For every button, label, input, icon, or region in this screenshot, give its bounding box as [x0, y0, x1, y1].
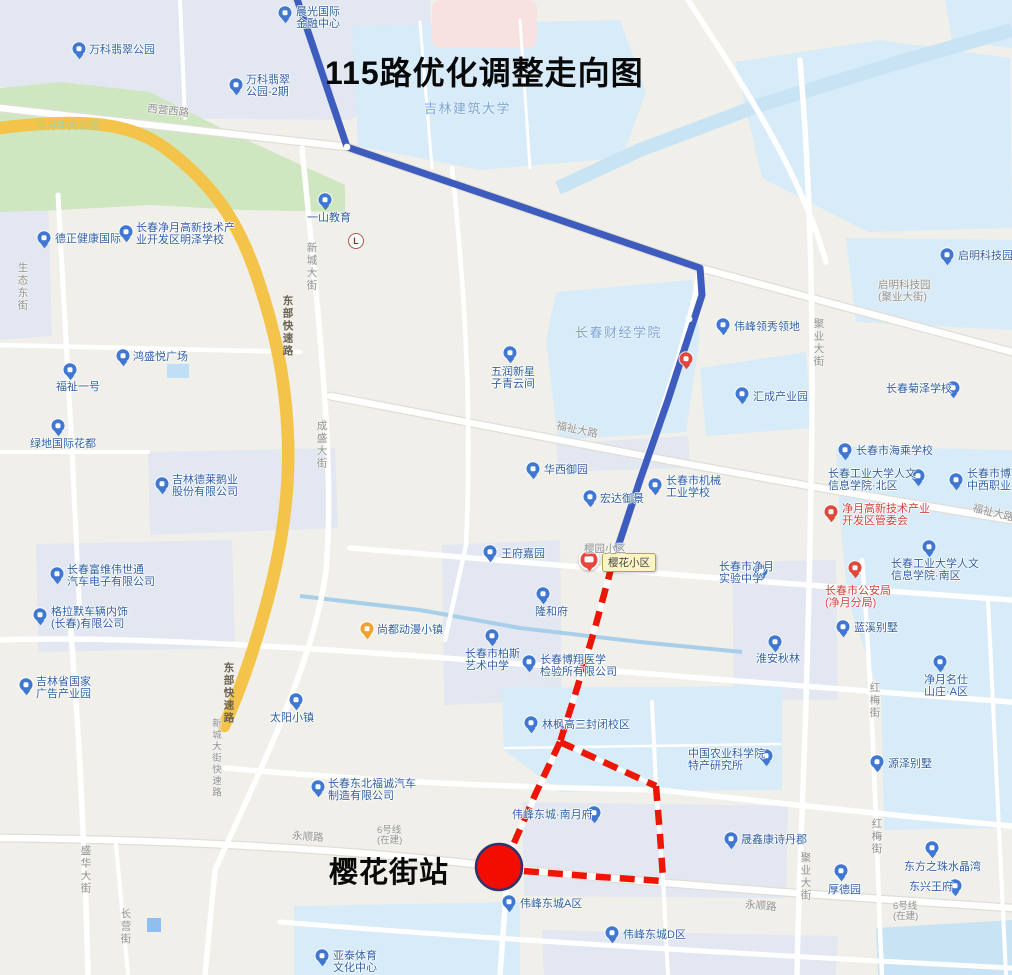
baisi-art-school-text: 艺术中学	[465, 660, 520, 672]
longhefu-icon[interactable]	[537, 587, 550, 600]
yingyuan-community-text: 樱园小区	[584, 544, 626, 556]
metro-line6-station-text: (在建)	[377, 836, 402, 846]
fucheng-auto-icon[interactable]	[312, 780, 325, 793]
public-security-jingyue-label: 长春市公安局(净月分局)	[825, 585, 891, 609]
shengxin-kangshidanjun-text: 晟鑫康诗丹郡	[741, 834, 807, 846]
lanxi-villa-icon[interactable]	[837, 620, 850, 633]
chengsheng-street-label: 成盛大街	[315, 420, 327, 470]
gaosan-campus-label: 林枫高三封闭校区	[542, 719, 630, 731]
huaian-qiulin-icon[interactable]	[769, 635, 782, 648]
weifeng-dongcheng-d-text: 伟峰东城D区	[623, 929, 686, 941]
map-screenshot: 115路优化调整走向图 樱花街站 L 樱花小区 晨光国际金融中心万科翡翠公园万科…	[0, 0, 1012, 975]
boyi-vocational-school-icon[interactable]	[950, 473, 963, 486]
jilin-jianzhu-university-text: 吉林建筑大学	[424, 101, 511, 116]
grammer-interior-text: (长春)有限公司	[51, 618, 128, 630]
shangdu-anime-town-icon[interactable]	[361, 622, 374, 635]
red-poi-marker-icon[interactable]	[680, 352, 693, 365]
gongda-renwen-north-text: 长春工业大学人文	[828, 468, 916, 480]
gaosan-campus-icon[interactable]	[525, 716, 538, 729]
hongsheng-plaza-label: 鸿盛悦广场	[133, 351, 188, 363]
xincheng-expressway-name-label: 新城大街快速路	[210, 718, 220, 799]
jingyue-mingshi-villa-a-icon[interactable]	[934, 655, 947, 668]
yishan-education-icon[interactable]	[319, 193, 332, 206]
yongshun-road-west-label: 永顺路	[292, 831, 324, 845]
fuzhi-road-east-label: 福祉大路	[971, 503, 1012, 524]
jilin-jianzhu-university-label: 吉林建筑大学	[424, 98, 511, 117]
label-overlay: 115路优化调整走向图 樱花街站 L 樱花小区 晨光国际金融中心万科翡翠公园万科…	[0, 0, 1012, 975]
metro-line6-station-label: 6号线(在建)	[377, 826, 402, 846]
wurun-xinxing-text: 子青云间	[491, 378, 535, 390]
weifeng-lingxiu-icon[interactable]	[717, 318, 730, 331]
hongda-yujing-icon[interactable]	[584, 490, 597, 503]
mingze-school-text: 业开发区明泽学校	[136, 234, 235, 246]
hongmei-street-n-label: 红梅街	[868, 682, 880, 720]
dongxing-wangfu-label: 东兴王府	[909, 881, 953, 893]
fuzhi-no1-label: 福祉一号	[56, 381, 100, 393]
jixie-industry-school-text: 工业学校	[666, 487, 721, 499]
xincheng-street-text: 新城大街	[305, 242, 317, 292]
yatai-sports-center-icon[interactable]	[316, 949, 329, 962]
qiming-tech-park-label: 启明科技园	[958, 250, 1012, 262]
boyi-vocational-school-label: 长春市博艺中西职业学	[967, 468, 1012, 492]
weifeng-dongcheng-d-icon[interactable]	[606, 926, 619, 939]
hongda-yujing-text: 宏达御景	[600, 493, 644, 505]
yatai-sports-center-label: 亚泰体育文化中心	[333, 950, 377, 974]
yongshun-road-east-label: 永顺路	[745, 900, 777, 914]
agri-academy-institute-label: 中国农业科学院特产研究所	[688, 748, 765, 772]
jilin-elai-goose-text: 股份有限公司	[172, 486, 238, 498]
juye-street-north-label: 聚业大街	[812, 318, 824, 368]
changying-street-label: 长营街	[119, 908, 131, 946]
jingyue-hightech-committee-label: 净月高新技术产业开发区管委会	[842, 503, 930, 527]
qiming-tech-park-icon[interactable]	[941, 248, 954, 261]
chenguang-intl-finance-center-text: 晨光国际	[296, 6, 340, 18]
metro-line6-east-label: 6号线(在建)	[893, 902, 918, 922]
agri-academy-institute-text: 中国农业科学院	[688, 748, 765, 760]
vanke-jade-park-label: 万科翡翠公园	[89, 44, 155, 56]
agri-academy-institute-text: 特产研究所	[688, 760, 765, 772]
vanke-jade-park-icon[interactable]	[73, 42, 86, 55]
lvdi-intl-huadu-text: 绿地国际花都	[30, 438, 96, 450]
jingyue-shiyan-middle-school-text: 长春市净月	[719, 561, 774, 573]
huicheng-industry-park-icon[interactable]	[736, 387, 749, 400]
jilin-ad-industry-park-text: 吉林省国家	[36, 676, 91, 688]
east-expressway-s-text: 东部快速路	[222, 662, 234, 725]
mingze-school-icon[interactable]	[120, 225, 133, 238]
longhefu-text: 隆和府	[535, 606, 568, 618]
gongda-renwen-south-label: 长春工业大学人文信息学院·南区	[891, 558, 979, 582]
yongshun-road-east-text: 永顺路	[745, 900, 777, 914]
jingyue-shiyan-middle-school-text: 实验中学	[719, 573, 774, 585]
dongxing-wangfu-text: 东兴王府	[909, 881, 953, 893]
jingyue-mingshi-villa-a-label: 净月名仕山庄·A区	[924, 674, 968, 698]
dongfangzhizhu-crystal-bay-icon[interactable]	[926, 841, 939, 854]
shengxin-kangshidanjun-label: 晟鑫康诗丹郡	[741, 834, 807, 846]
weifeng-dongcheng-a-icon[interactable]	[503, 895, 516, 908]
east-expressway-s-label: 东部快速路	[222, 662, 234, 725]
juye-street-north-text: 聚业大街	[812, 318, 824, 368]
jingyue-hightech-committee-icon[interactable]	[825, 505, 838, 518]
fuzhi-road-east-text: 福祉大路	[971, 503, 1012, 524]
yongshun-road-west-text: 永顺路	[292, 831, 324, 845]
weifeng-nanyuefu-label: 伟峰东城·南月府	[512, 809, 593, 821]
jilin-elai-goose-icon[interactable]	[156, 477, 169, 490]
jingyue-hightech-committee-text: 开发区管委会	[842, 515, 930, 527]
haicheng-school-text: 长春市海乘学校	[856, 445, 933, 457]
fuwei-visteon-text: 长春富维伟世通	[67, 564, 155, 576]
fuzhi-road-mid-text: 福祉大路	[555, 421, 598, 441]
dezheng-health-intl-text: 德正健康国际	[55, 233, 121, 245]
boyi-vocational-school-text: 长春市博艺	[967, 468, 1012, 480]
vanke-jade-park-text: 万科翡翠公园	[89, 44, 155, 56]
vanke-jade-park-2-text: 万科翡翠	[246, 74, 290, 86]
metro-line6-east-text: (在建)	[893, 912, 918, 922]
boxiang-medical-lab-label: 长春博翔医学检验所有限公司	[540, 654, 617, 678]
changchun-finance-college-label: 长春财经学院	[575, 322, 662, 341]
weifeng-dongcheng-a-label: 伟峰东城A区	[520, 898, 582, 910]
mingze-school-text: 长春净月高新技术产	[136, 222, 235, 234]
chengsheng-street-text: 成盛大街	[315, 420, 327, 470]
dongfangzhizhu-crystal-bay-label: 东方之珠水晶湾	[904, 861, 981, 873]
jilin-elai-goose-label: 吉林德莱鹅业股份有限公司	[172, 474, 238, 498]
hongmei-street-n-text: 红梅街	[868, 682, 880, 720]
huicheng-industry-park-label: 汇成产业园	[753, 391, 808, 403]
public-security-jingyue-text: 长春市公安局	[825, 585, 891, 597]
juze-school-text: 长春菊泽学校	[886, 383, 952, 395]
qiming-tech-park-juye-label: 启明科技园(聚业大街)	[878, 280, 931, 303]
gongda-renwen-south-text: 长春工业大学人文	[891, 558, 979, 570]
shenghua-street-label: 盛华大街	[79, 845, 91, 895]
lvdi-intl-huadu-label: 绿地国际花都	[30, 438, 96, 450]
public-security-jingyue-icon[interactable]	[849, 561, 862, 574]
juye-street-south-label: 聚业大街	[799, 852, 811, 902]
map-title: 115路优化调整走向图	[325, 48, 644, 94]
fucheng-auto-text: 长春东北福诚汽车	[328, 778, 416, 790]
qiming-tech-park-text: 启明科技园	[958, 250, 1012, 262]
changying-street-text: 长营街	[119, 908, 131, 946]
jilin-elai-goose-text: 吉林德莱鹅业	[172, 474, 238, 486]
shangdu-anime-town-text: 尚都动漫小镇	[377, 624, 443, 636]
jingyue-mingshi-villa-a-text: 山庄·A区	[924, 686, 968, 698]
yuanze-villa-label: 源泽别墅	[888, 758, 932, 770]
boyi-vocational-school-text: 中西职业学	[967, 480, 1012, 492]
fuzhi-road-mid-label: 福祉大路	[555, 421, 598, 441]
huaxi-yuyuan-icon[interactable]	[527, 462, 540, 475]
longhefu-label: 隆和府	[535, 606, 568, 618]
chenguang-intl-finance-center-icon[interactable]	[279, 6, 292, 19]
houdeyuan-text: 厚德园	[828, 884, 861, 896]
chenguang-intl-finance-center-label: 晨光国际金融中心	[296, 6, 340, 30]
boxiang-medical-lab-text: 检验所有限公司	[540, 666, 617, 678]
gongda-renwen-south-text: 信息学院·南区	[891, 570, 979, 582]
jilin-ad-industry-park-icon[interactable]	[20, 678, 33, 691]
huaxi-yuyuan-label: 华西御园	[544, 464, 588, 476]
vanke-jade-park-2-icon[interactable]	[230, 78, 243, 91]
gongda-renwen-north-text: 信息学院·北区	[828, 480, 916, 492]
yingyuan-community-label: 樱园小区	[584, 544, 626, 556]
jingyue-hightech-committee-text: 净月高新技术产业	[842, 503, 930, 515]
grammer-interior-text: 格拉默车辆内饰	[51, 606, 128, 618]
wurun-xinxing-icon[interactable]	[504, 346, 517, 359]
jilin-ad-industry-park-label: 吉林省国家广告产业园	[36, 676, 91, 700]
houdeyuan-label: 厚德园	[828, 884, 861, 896]
fuzhi-no1-text: 福祉一号	[56, 381, 100, 393]
landmark-icon: L	[348, 233, 364, 249]
jixie-industry-school-text: 长春市机械	[666, 475, 721, 487]
boxiang-medical-lab-icon[interactable]	[523, 655, 536, 668]
station-label: 樱花街站	[329, 849, 449, 891]
weifeng-dongcheng-d-label: 伟峰东城D区	[623, 929, 686, 941]
weifeng-nanyuefu-text: 伟峰东城·南月府	[512, 809, 593, 821]
fuwei-visteon-icon[interactable]	[51, 567, 64, 580]
grammer-interior-label: 格拉默车辆内饰(长春)有限公司	[51, 606, 128, 630]
taiyang-town-text: 太阳小镇	[270, 712, 314, 724]
bus-stop-tooltip[interactable]: 樱花小区	[602, 553, 656, 572]
east-expressway-n-label: 东部快速路	[281, 295, 293, 358]
wangfu-jiayuan-text: 王府嘉园	[501, 548, 545, 560]
east-expressway-n-text: 东部快速路	[281, 295, 293, 358]
fuwei-visteon-label: 长春富维伟世通汽车电子有限公司	[67, 564, 155, 588]
jingyue-shiyan-middle-school-label: 长春市净月实验中学	[719, 561, 774, 585]
juye-street-south-text: 聚业大街	[799, 852, 811, 902]
fucheng-auto-label: 长春东北福诚汽车制造有限公司	[328, 778, 416, 802]
shengtai-east-street-text: 生态东街	[16, 262, 28, 312]
shengtai-east-street-label: 生态东街	[16, 262, 28, 312]
fucheng-auto-text: 制造有限公司	[328, 790, 416, 802]
huaian-qiulin-label: 淮安秋林	[756, 653, 800, 665]
hongda-yujing-label: 宏达御景	[600, 493, 644, 505]
shengxin-kangshidanjun-icon[interactable]	[725, 832, 738, 845]
wurun-xinxing-label: 五润新星子青云间	[491, 366, 535, 390]
mingze-school-label: 长春净月高新技术产业开发区明泽学校	[136, 222, 235, 246]
yuanze-villa-text: 源泽别墅	[888, 758, 932, 770]
grammer-interior-icon[interactable]	[34, 608, 47, 621]
xincheng-expressway-name-text: 新城大街快速路	[210, 718, 220, 799]
boxiang-medical-lab-text: 长春博翔医学	[540, 654, 617, 666]
shenghua-street-text: 盛华大街	[79, 845, 91, 895]
huaian-qiulin-text: 淮安秋林	[756, 653, 800, 665]
wangfu-jiayuan-icon[interactable]	[484, 545, 497, 558]
xiying-west-road-label: 西营西路	[147, 104, 190, 120]
public-security-jingyue-text: (净月分局)	[825, 597, 891, 609]
huicheng-industry-park-text: 汇成产业园	[753, 391, 808, 403]
weifeng-lingxiu-text: 伟峰领秀领地	[734, 321, 800, 333]
lanxi-villa-text: 蓝溪别墅	[854, 622, 898, 634]
changchun-finance-college-text: 长春财经学院	[575, 325, 662, 340]
yuanze-villa-icon[interactable]	[871, 755, 884, 768]
jilin-ad-industry-park-text: 广告产业园	[36, 688, 91, 700]
dezheng-health-intl-icon[interactable]	[38, 231, 51, 244]
wangfu-jiayuan-label: 王府嘉园	[501, 548, 545, 560]
qiming-tech-park-juye-text: 启明科技园	[878, 280, 931, 292]
hongmei-street-s-text: 红梅街	[870, 818, 882, 856]
hongsheng-plaza-icon[interactable]	[117, 349, 130, 362]
chenguang-intl-finance-center-text: 金融中心	[296, 18, 340, 30]
hongmei-street-s-label: 红梅街	[870, 818, 882, 856]
weifeng-lingxiu-label: 伟峰领秀领地	[734, 321, 800, 333]
jingyue-central-park-label: 净月中央公园	[36, 121, 99, 133]
haicheng-school-label: 长春市海乘学校	[856, 445, 933, 457]
gaosan-campus-text: 林枫高三封闭校区	[542, 719, 630, 731]
baisi-art-school-label: 长春市柏斯艺术中学	[465, 648, 520, 672]
xiying-west-road-text: 西营西路	[147, 104, 190, 120]
wurun-xinxing-text: 五润新星	[491, 366, 535, 378]
dongfangzhizhu-crystal-bay-text: 东方之珠水晶湾	[904, 861, 981, 873]
lanxi-villa-label: 蓝溪别墅	[854, 622, 898, 634]
fuzhi-no1-icon[interactable]	[64, 363, 77, 376]
juze-school-label: 长春菊泽学校	[886, 383, 952, 395]
haicheng-school-icon[interactable]	[839, 443, 852, 456]
gongda-renwen-south-icon[interactable]	[923, 540, 936, 553]
yatai-sports-center-text: 文化中心	[333, 962, 377, 974]
yatai-sports-center-text: 亚泰体育	[333, 950, 377, 962]
hongsheng-plaza-text: 鸿盛悦广场	[133, 351, 188, 363]
shangdu-anime-town-label: 尚都动漫小镇	[377, 624, 443, 636]
lvdi-intl-huadu-icon[interactable]	[52, 419, 65, 432]
baisi-art-school-icon[interactable]	[486, 629, 499, 642]
yishan-education-label: 一山教育	[307, 212, 351, 224]
houdeyuan-icon[interactable]	[835, 864, 848, 877]
xincheng-street-label: 新城大街	[305, 242, 317, 292]
taiyang-town-label: 太阳小镇	[270, 712, 314, 724]
taiyang-town-icon[interactable]	[290, 693, 303, 706]
jixie-industry-school-label: 长春市机械工业学校	[666, 475, 721, 499]
qiming-tech-park-juye-text: (聚业大街)	[878, 292, 931, 304]
gongda-renwen-north-label: 长春工业大学人文信息学院·北区	[828, 468, 916, 492]
jingyue-central-park-text: 净月中央公园	[36, 121, 99, 133]
vanke-jade-park-2-text: 公园-2期	[246, 86, 290, 98]
weifeng-dongcheng-a-text: 伟峰东城A区	[520, 898, 582, 910]
baisi-art-school-text: 长春市柏斯	[465, 648, 520, 660]
fuwei-visteon-text: 汽车电子有限公司	[67, 576, 155, 588]
dezheng-health-intl-label: 德正健康国际	[55, 233, 121, 245]
huaxi-yuyuan-text: 华西御园	[544, 464, 588, 476]
yishan-education-text: 一山教育	[307, 212, 351, 224]
jixie-industry-school-icon[interactable]	[649, 478, 662, 491]
jingyue-mingshi-villa-a-text: 净月名仕	[924, 674, 968, 686]
vanke-jade-park-2-label: 万科翡翠公园-2期	[246, 74, 290, 98]
